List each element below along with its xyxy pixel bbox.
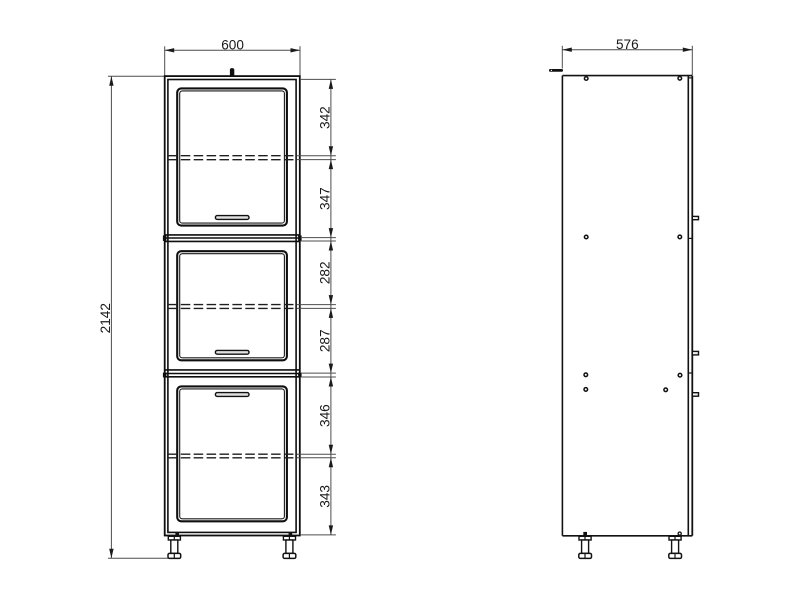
svg-text:2142: 2142 (98, 303, 113, 333)
svg-text:576: 576 (616, 37, 639, 52)
svg-text:343: 343 (318, 485, 333, 508)
svg-text:347: 347 (318, 187, 333, 210)
svg-text:600: 600 (221, 37, 244, 52)
svg-text:342: 342 (318, 106, 333, 129)
svg-text:287: 287 (318, 329, 333, 352)
svg-text:346: 346 (318, 404, 333, 427)
svg-text:282: 282 (318, 261, 333, 284)
